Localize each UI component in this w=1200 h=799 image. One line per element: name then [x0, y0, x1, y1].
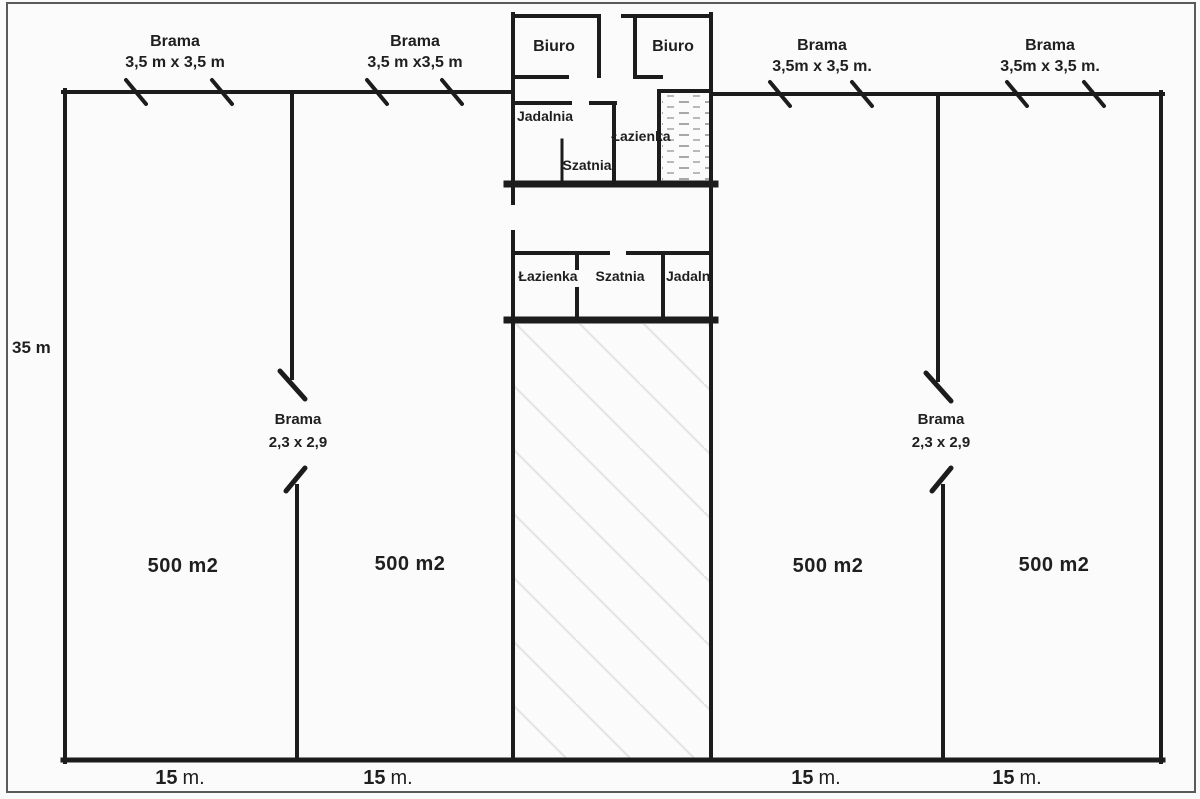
room-label-szatnia-top: Szatnia [562, 157, 611, 175]
dimension-value: 15 [155, 767, 177, 789]
gate-label-inner-left: Brama 2,3 x 2,9 [269, 408, 327, 454]
gate-size: 3,5 m x 3,5 m [125, 52, 225, 73]
gate-label-top-1: Brama 3,5 m x 3,5 m [125, 31, 225, 73]
dimension-unit: m. [391, 767, 413, 789]
mid-block-walls [507, 253, 715, 320]
dimension-value: 15 [791, 767, 813, 789]
room-label-lazienka-mid: Łazienka [518, 268, 577, 286]
gate-name: Brama [367, 31, 462, 52]
room-label-jadalnia-top: Jadalnia [517, 108, 573, 126]
room-label-biuro-right: Biuro [652, 37, 694, 57]
gate-size: 2,3 x 2,9 [269, 431, 327, 454]
dimension-label-width-1: 15m. [155, 766, 204, 791]
gate-size: 3,5m x 3,5 m. [772, 56, 872, 77]
gate-size: 3,5 m x3,5 m [367, 52, 462, 73]
area-label-2: 500 m2 [375, 552, 446, 577]
diagonal-hatch-area [515, 324, 709, 758]
gate-name: Brama [1000, 35, 1100, 56]
dimension-unit: m. [183, 767, 205, 789]
dimension-value: 15 [992, 767, 1014, 789]
gate-size: 2,3 x 2,9 [912, 431, 970, 454]
gate-label-top-2: Brama 3,5 m x3,5 m [367, 31, 462, 73]
dimension-label-width-2: 15m. [363, 766, 412, 791]
floor-plan-drawing [0, 0, 1200, 799]
floor-plan-page: Brama 3,5 m x 3,5 m Brama 3,5 m x3,5 m B… [0, 0, 1200, 799]
gate-name: Brama [269, 408, 327, 431]
room-label-lazienka-top: Łazienka [611, 128, 670, 146]
area-label-4: 500 m2 [1019, 553, 1090, 578]
gate-name: Brama [772, 35, 872, 56]
dimension-unit: m. [819, 767, 841, 789]
gate-name: Brama [125, 31, 225, 52]
room-label-biuro-left: Biuro [533, 37, 575, 57]
area-label-3: 500 m2 [793, 554, 864, 579]
gate-name: Brama [912, 408, 970, 431]
gate-size: 3,5m x 3,5 m. [1000, 56, 1100, 77]
dimension-unit: m. [1020, 767, 1042, 789]
gate-label-top-3: Brama 3,5m x 3,5 m. [772, 35, 872, 77]
gate-label-inner-right: Brama 2,3 x 2,9 [912, 408, 970, 454]
room-label-jadalnia-mid: Jadalnia [666, 268, 710, 286]
dimension-value: 15 [363, 767, 385, 789]
room-label-szatnia-mid: Szatnia [595, 268, 644, 286]
area-label-1: 500 m2 [148, 554, 219, 579]
dimension-label-width-3: 15m. [791, 766, 840, 791]
gate-label-top-4: Brama 3,5m x 3,5 m. [1000, 35, 1100, 77]
dimension-label-width-4: 15m. [992, 766, 1041, 791]
dimension-label-height: 35 m [12, 337, 51, 358]
